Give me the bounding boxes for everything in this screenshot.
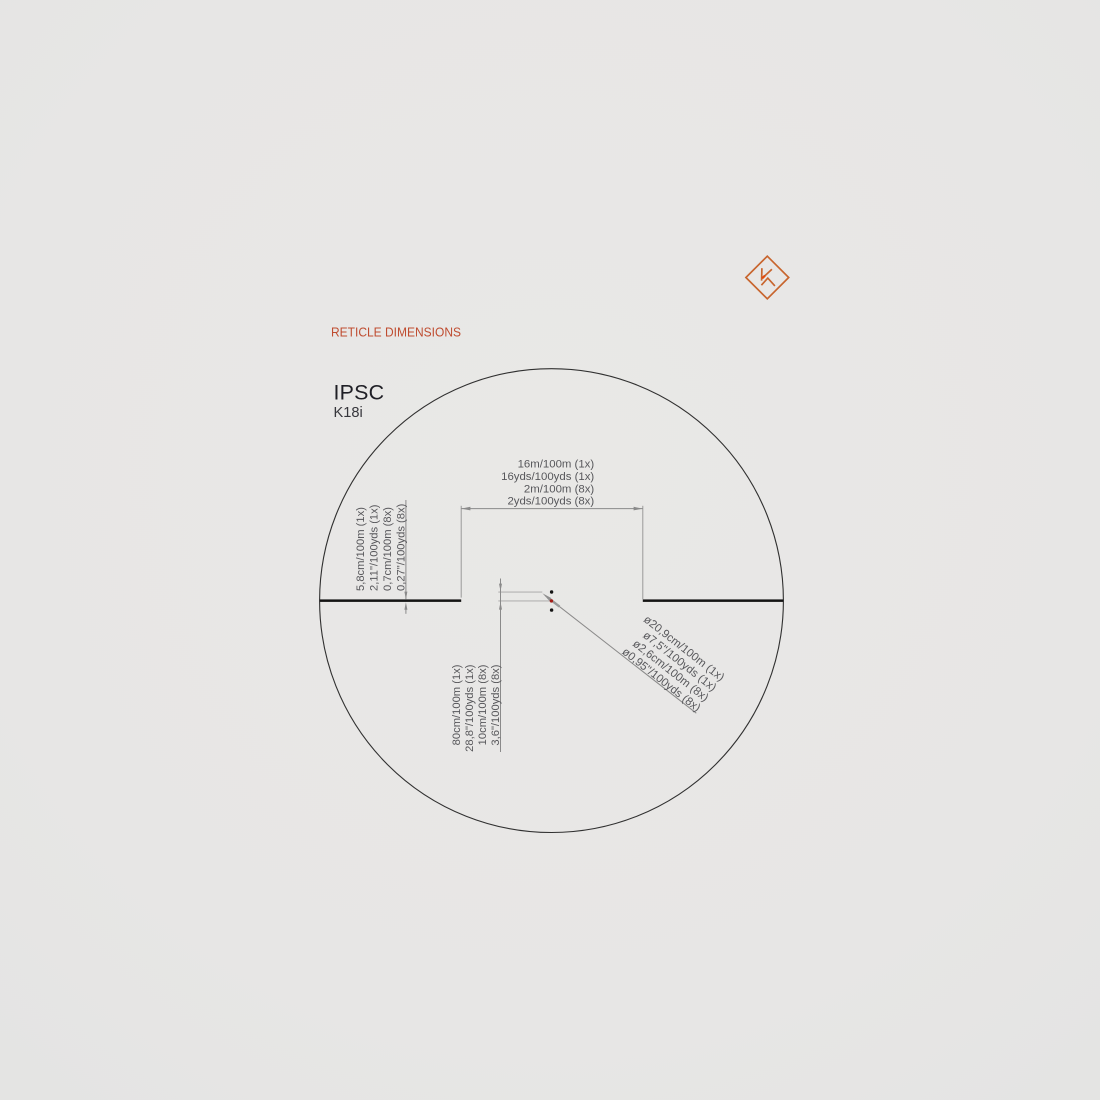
svg-text:28,8"/100yds (1x): 28,8"/100yds (1x): [464, 664, 476, 752]
svg-text:2yds/100yds (8x): 2yds/100yds (8x): [507, 496, 594, 508]
svg-text:2,11"/100yds (1x): 2,11"/100yds (1x): [368, 504, 380, 591]
svg-text:K18i: K18i: [334, 405, 363, 421]
svg-text:5,8cm/100m (1x): 5,8cm/100m (1x): [355, 507, 367, 591]
svg-text:3,6"/100yds (8x): 3,6"/100yds (8x): [490, 664, 502, 745]
svg-text:RETICLE DIMENSIONS: RETICLE DIMENSIONS: [331, 325, 461, 340]
svg-text:IPSC: IPSC: [334, 381, 385, 405]
svg-text:0,27"/100yds (8x): 0,27"/100yds (8x): [396, 503, 408, 591]
svg-text:2m/100m (8x): 2m/100m (8x): [524, 483, 594, 495]
svg-text:16m/100m (1x): 16m/100m (1x): [518, 459, 595, 471]
svg-text:16yds/100yds (1x): 16yds/100yds (1x): [501, 471, 594, 483]
svg-text:10cm/100m (8x): 10cm/100m (8x): [477, 664, 489, 745]
svg-text:0,7cm/100m (8x): 0,7cm/100m (8x): [382, 507, 394, 591]
svg-text:80cm/100m (1x): 80cm/100m (1x): [451, 664, 463, 745]
